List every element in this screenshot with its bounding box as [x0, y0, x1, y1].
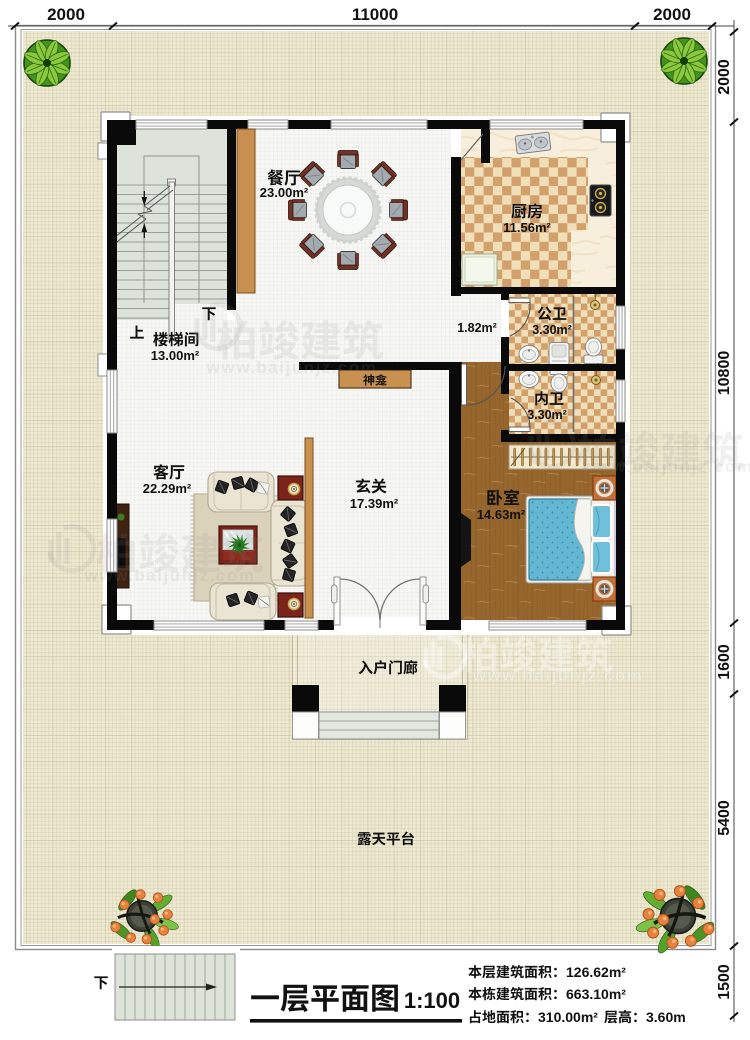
svg-text:11000: 11000	[352, 5, 398, 24]
svg-text:1:100: 1:100	[404, 988, 460, 1013]
svg-text:126.62m²: 126.62m²	[566, 964, 626, 980]
svg-text:10800: 10800	[716, 351, 733, 396]
svg-text:2000: 2000	[47, 5, 85, 24]
svg-text:1600: 1600	[716, 644, 733, 680]
svg-text:3.30m²: 3.30m²	[527, 408, 567, 422]
svg-text:1500: 1500	[716, 964, 733, 1000]
svg-text:1.82m²: 1.82m²	[457, 321, 497, 335]
svg-text:22.29m²: 22.29m²	[143, 481, 192, 496]
svg-text:2000: 2000	[653, 5, 691, 24]
svg-text:17.39m²: 17.39m²	[350, 496, 399, 511]
svg-text:5400: 5400	[716, 800, 733, 836]
svg-text:3.30m²: 3.30m²	[532, 323, 572, 337]
svg-text:www.baijunjz.com: www.baijunjz.com	[472, 666, 644, 685]
svg-text:14.63m²: 14.63m²	[477, 507, 526, 522]
svg-text:www.baijunjz.com: www.baijunjz.com	[582, 457, 750, 476]
svg-text:www.baijunjz.com: www.baijunjz.com	[84, 566, 256, 585]
svg-text:www.baijunjz.com: www.baijunjz.com	[206, 358, 378, 377]
svg-text:3.60m: 3.60m	[646, 1009, 686, 1025]
svg-text:310.00m²: 310.00m²	[538, 1009, 598, 1025]
svg-text:11.56m²: 11.56m²	[503, 220, 551, 235]
svg-text:23.00m²: 23.00m²	[260, 185, 309, 200]
svg-text:13.00m²: 13.00m²	[151, 348, 200, 363]
svg-text:2000: 2000	[716, 59, 733, 95]
svg-text:663.10m²: 663.10m²	[566, 986, 626, 1002]
